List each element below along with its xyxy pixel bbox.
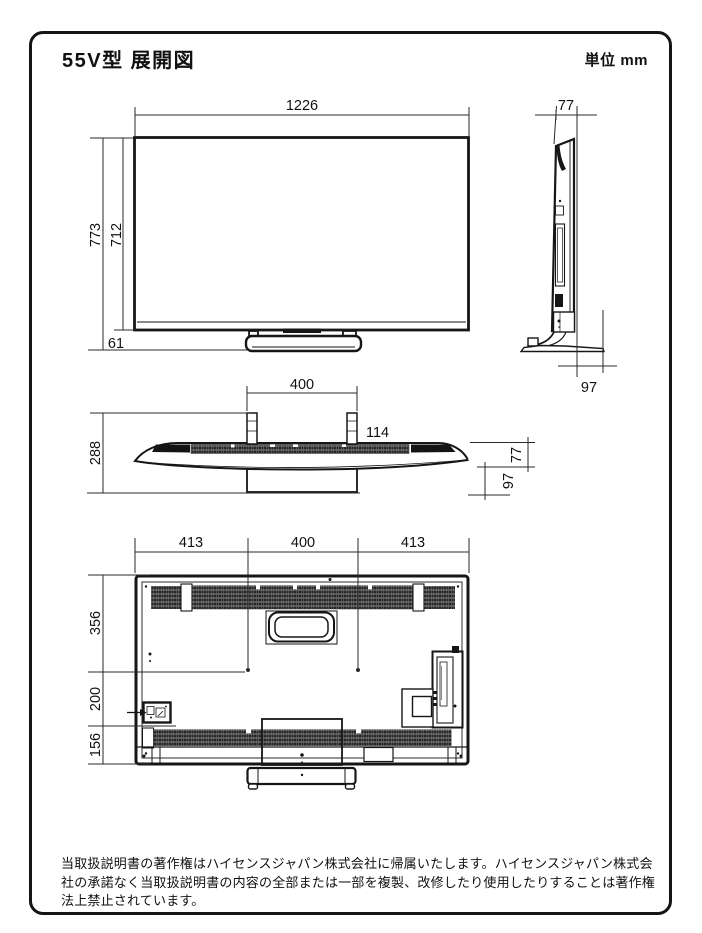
- power-inlet-box: [144, 703, 171, 723]
- dim-front-screen-height: 712: [109, 223, 125, 247]
- stand-front-bar: [246, 336, 361, 351]
- back-top-vent-center: [192, 586, 413, 610]
- back-view: [127, 576, 468, 789]
- dim-back-span-right: 413: [401, 535, 425, 551]
- copyright-line: 当取扱説明書の著作権はハイセンスジャパン株式会社に帰属いたします。ハイセンスジャ…: [61, 855, 655, 874]
- copyright-line: 社の承諾なく当取扱説明書の内容の全部または一部を複製、改修したり使用したりするこ…: [61, 874, 655, 893]
- front-bottom-notch: [283, 329, 321, 334]
- bottom-terminal-box: [402, 689, 433, 727]
- side-view: [521, 139, 604, 352]
- dim-back-middle-height: 200: [88, 687, 104, 711]
- back-top-vent-right: [424, 586, 455, 609]
- rating-label-plate: [364, 748, 393, 762]
- dim-back-span-center: 400: [291, 535, 315, 551]
- dim-side-depth: 77: [558, 98, 574, 114]
- dim-top-base-rear: 97: [501, 473, 517, 489]
- back-top-vent-left: [151, 586, 181, 609]
- dim-back-upper-height: 356: [88, 611, 104, 635]
- copyright-note: 当取扱説明書の著作権はハイセンスジャパン株式会社に帰属いたします。ハイセンスジャ…: [61, 855, 655, 911]
- dim-top-total-depth: 288: [88, 441, 104, 465]
- front-view: [135, 138, 469, 352]
- dimension-drawing: 1226 773 712 61 77 97: [0, 0, 702, 933]
- dim-back-span-left: 413: [179, 535, 203, 551]
- side-view-dimensions: [535, 106, 617, 377]
- dim-top-panel-depth: 77: [509, 447, 525, 463]
- dim-top-neck-offset: 114: [366, 425, 389, 441]
- dim-top-stand-width: 400: [290, 377, 314, 393]
- stand-side-base: [521, 346, 604, 352]
- dim-front-total-height: 773: [88, 223, 104, 247]
- copyright-line: 法上禁止されています。: [61, 892, 655, 911]
- dim-front-width: 1226: [286, 98, 318, 114]
- back-bottom-vent: [154, 730, 452, 747]
- dim-back-lower-height: 156: [88, 733, 104, 757]
- dim-front-stand-gap: 61: [108, 336, 124, 352]
- top-view: [135, 413, 468, 492]
- dim-side-base-depth: 97: [581, 380, 597, 396]
- tv-front-outline: [135, 138, 469, 331]
- top-vent-strip: [191, 445, 409, 454]
